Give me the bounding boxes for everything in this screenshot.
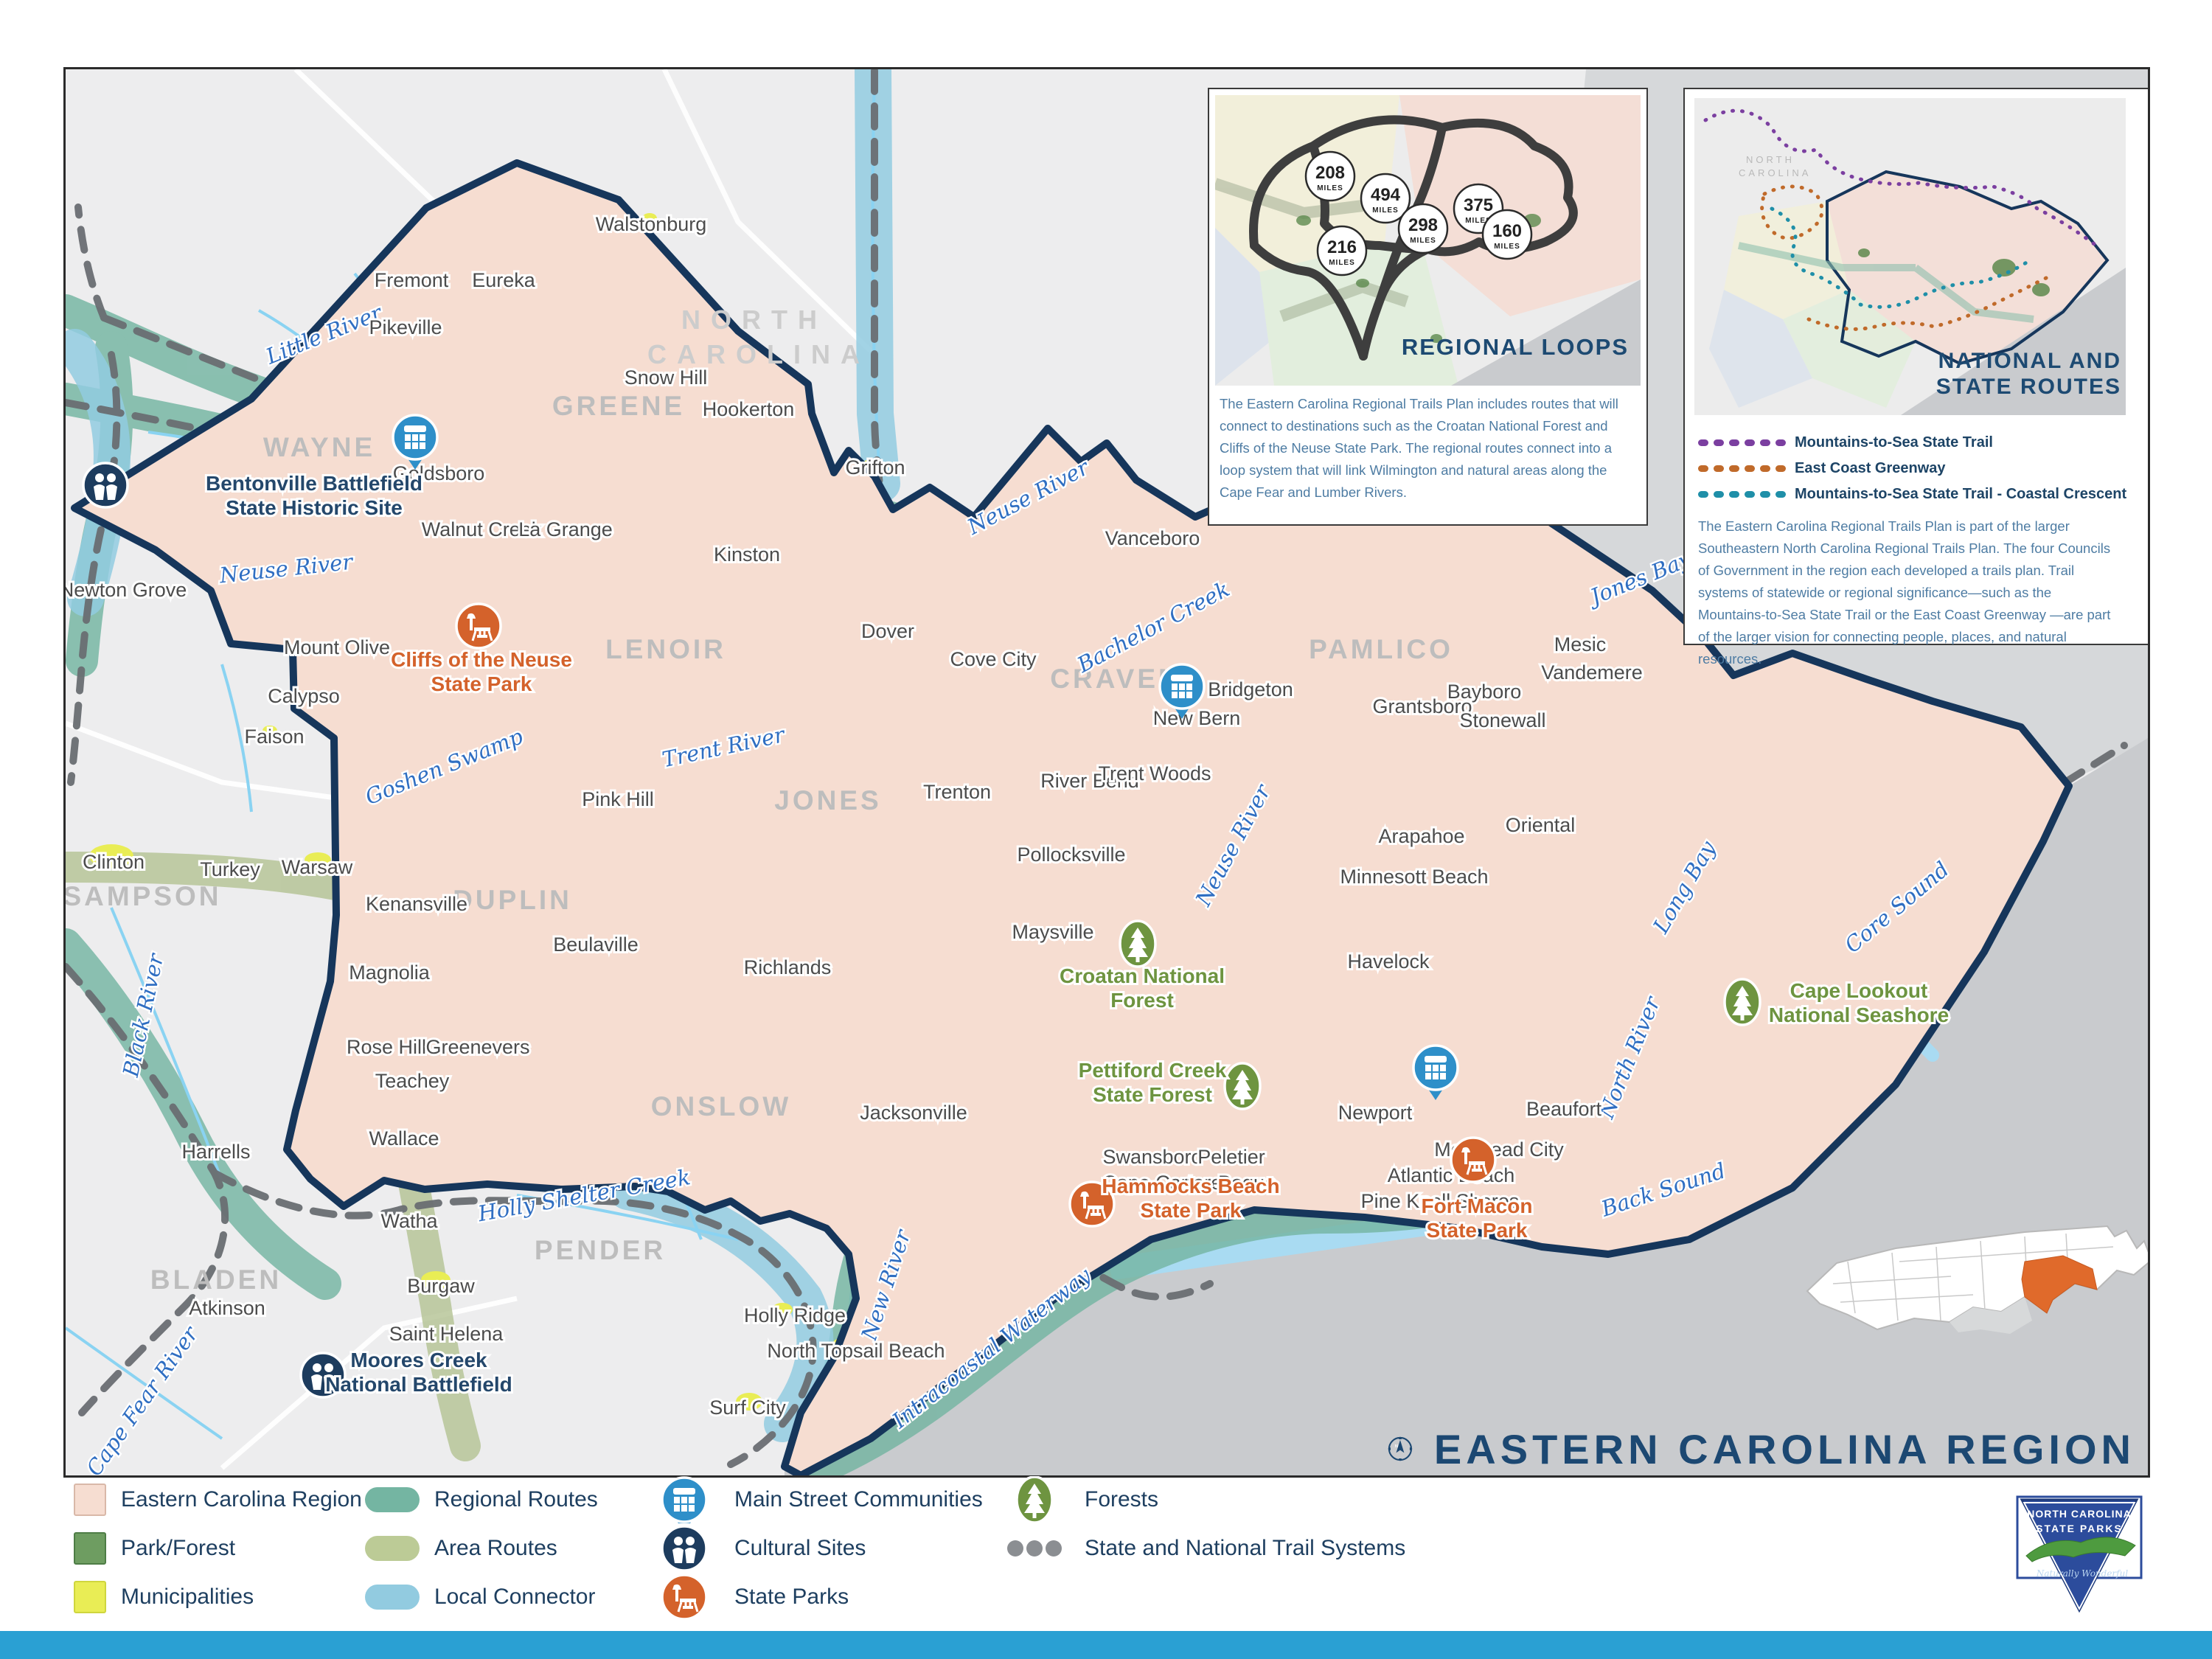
statepark-label: Cliffs of the Neuse [391,648,572,671]
footer-bar [0,1631,2212,1659]
city-label: Pink Hill [582,788,654,810]
legend-row: Park/Forest [74,1534,362,1563]
city-label: Wallace [369,1127,439,1150]
city-label: Calypso [268,685,340,707]
route-legend-row: Mountains-to-Sea State Trail - Coastal C… [1698,481,2135,507]
county-label: JONES [774,785,881,815]
forest-label: National Seashore [1769,1004,1949,1026]
svg-text:STATE PARKS: STATE PARKS [2036,1523,2123,1534]
county-label: ONSLOW [651,1091,791,1121]
svg-text:NORTH: NORTH [1746,154,1795,165]
city-label: Swansboro [1102,1146,1202,1168]
city-label: Kinston [714,543,780,566]
city-label: Bayboro [1447,681,1522,703]
city-label: Pikeville [369,316,442,338]
legend-pill [365,1536,420,1561]
legend-row: State and National Trail Systems [999,1534,1405,1563]
city-label: Dover [861,620,914,642]
city-label: Maysville [1012,921,1093,943]
city-label: Turkey [200,858,260,880]
legend-row: Cultural Sites [649,1534,983,1563]
city-label: Holly Ridge [744,1304,846,1326]
city-label: Minnesott Beach [1340,866,1488,888]
route-legend-row: East Coast Greenway [1698,456,2135,481]
title-block: N EASTERN CAROLINA REGION [1387,1412,2135,1478]
city-label: Teachey [375,1070,450,1092]
city-label: Peletier [1197,1146,1265,1168]
cultural-icon [649,1525,720,1572]
legend-label: Cultural Sites [734,1536,866,1561]
svg-text:298: 298 [1408,215,1438,235]
traildots-icon [999,1525,1070,1572]
mainstreet-icon [649,1476,720,1523]
city-label: Burgaw [407,1275,475,1297]
legend-label: State Parks [734,1585,849,1610]
city-label: Trent Woods [1098,762,1211,785]
cultural-icon[interactable] [83,463,128,507]
forest-label: Cape Lookout [1790,979,1928,1002]
mileage-badge: 216 MILES [1318,226,1366,275]
plan-map-page: WAYNEGREENELENOIRCRAVENPAMLICOJONESSAMPS… [0,0,2212,1659]
route-dotted-line-icon [1698,491,1786,498]
city-label: Mount Olive [284,636,390,658]
county-label: LENOIR [605,634,726,664]
county-label: WAYNE [263,432,375,462]
statepark-icon [649,1573,720,1621]
legend-swatch [74,1484,106,1516]
cultural-label: National Battlefield [325,1373,512,1396]
city-label: Oriental [1506,814,1576,836]
forest-label: Forest [1110,989,1174,1012]
city-label: Snow Hill [625,366,708,389]
inset-loops-description: The Eastern Carolina Regional Trails Pla… [1220,393,1636,504]
city-label: Warsaw [282,856,353,878]
svg-text:494: 494 [1371,185,1401,205]
county-label: PENDER [535,1235,666,1265]
route-legend-label: Mountains-to-Sea State Trail [1795,434,1993,451]
svg-text:Naturally Wonderful: Naturally Wonderful [2036,1568,2129,1579]
legend-label: Municipalities [121,1585,254,1610]
forest-icon[interactable] [1225,1063,1260,1109]
statepark-label: State Park [1141,1199,1242,1222]
forest-label: State Forest [1093,1083,1212,1106]
svg-text:MILES: MILES [1372,206,1399,215]
city-label: Magnolia [349,961,431,984]
nc-state-parks-logo: NORTH CAROLINA STATE PARKS Naturally Won… [2014,1494,2144,1615]
city-label: Grifton [845,456,905,479]
svg-text:MILES: MILES [1494,243,1520,251]
city-label: Beulaville [553,933,639,956]
statepark-icon[interactable] [456,604,501,648]
svg-text:MILES: MILES [1329,259,1355,267]
route-dotted-line-icon [1698,439,1786,446]
cultural-label: Moores Creek [350,1349,487,1371]
city-label: Harrells [181,1141,250,1163]
legend-row: Regional Routes [365,1485,598,1514]
legend-row: Area Routes [365,1534,598,1563]
inset-loops-title: REGIONAL LOOPS [1402,334,1629,361]
inset-routes-title: NATIONAL AND STATE ROUTES [1936,349,2121,400]
statepark-label: State Park [1427,1219,1528,1242]
county-label: GREENE [552,391,685,421]
city-label: Eureka [472,269,536,291]
legend-label: Area Routes [434,1536,557,1561]
legend-row: State Parks [649,1582,983,1612]
city-label: Richlands [744,956,832,978]
route-dotted-line-icon [1698,465,1786,472]
cultural-icon[interactable] [662,1526,706,1571]
city-label: La Grange [518,518,613,540]
legend-row: Main Street Communities [649,1485,983,1514]
city-label: Fremont [375,269,449,291]
forest-icon[interactable] [1725,979,1760,1025]
statepark-icon[interactable] [1451,1138,1495,1182]
route-legend-label: East Coast Greenway [1795,460,1946,477]
county-label: SAMPSON [66,881,222,911]
city-label: Greenevers [425,1036,529,1058]
city-label: Jacksonville [860,1102,967,1124]
city-label: North Topsail Beach [767,1340,945,1362]
city-label: Walstonburg [596,213,707,235]
city-label: Bridgeton [1208,678,1293,700]
legend-pill [365,1585,420,1610]
statepark-label: Hammocks Beach [1102,1175,1279,1197]
county-label: PAMLICO [1309,634,1453,664]
compass-icon: N [1387,1417,1413,1478]
mileage-badge: 298 MILES [1399,204,1447,253]
city-label: Stonewall [1459,709,1545,731]
city-label: Kenansville [366,893,467,915]
svg-text:NORTH CAROLINA: NORTH CAROLINA [2027,1508,2132,1520]
legend-label: Regional Routes [434,1487,598,1512]
svg-text:375: 375 [1464,195,1493,215]
city-label: Saint Helena [389,1323,504,1345]
inset-regional-loops[interactable]: 208 MILES 494 MILES 298 MILES 375 MILES … [1208,88,1648,526]
legend-pill [365,1487,420,1512]
legend-swatch [74,1532,106,1565]
route-legend-label: Mountains-to-Sea State Trail - Coastal C… [1795,486,2126,503]
route-legend-row: Mountains-to-Sea State Trail [1698,430,2135,455]
city-label: Pollocksville [1017,844,1125,866]
city-label: Rose Hill [347,1036,426,1058]
legend-label: Local Connector [434,1585,595,1610]
inset-national-state-routes[interactable]: NORTH CAROLINA NATIONAL AND STATE ROUTES… [1683,88,2149,645]
legend-row: Eastern Carolina Region [74,1485,362,1514]
legend-label: Forests [1085,1487,1158,1512]
main-map[interactable]: WAYNEGREENELENOIRCRAVENPAMLICOJONESSAMPS… [63,67,2150,1478]
city-label: Watha [380,1210,438,1232]
city-label: Newton Grove [66,579,187,601]
svg-text:160: 160 [1492,221,1522,241]
forest-icon[interactable] [1120,921,1155,967]
legend-swatch [74,1581,106,1613]
statepark-label: Fort Macon [1422,1194,1533,1217]
county-label: DUPLIN [453,885,572,915]
mileage-badge: 208 MILES [1306,152,1354,201]
forest-icon [999,1476,1070,1523]
legend-row: Local Connector [365,1582,598,1612]
svg-text:MILES: MILES [1410,237,1436,245]
city-label: Beaufort [1526,1098,1602,1120]
legend-label: State and National Trail Systems [1085,1536,1405,1561]
city-label: Mesic [1554,633,1607,655]
map-legend: Eastern Carolina RegionPark/ForestMunici… [65,1485,1466,1627]
svg-text:N: N [1395,1444,1398,1449]
forest-icon[interactable] [1017,1477,1052,1523]
mainstreet-icon[interactable] [662,1478,706,1523]
forest-label: Croatan National [1060,964,1225,987]
legend-row: Forests [999,1485,1405,1514]
legend-label: Main Street Communities [734,1487,983,1512]
svg-text:CAROLINA: CAROLINA [1739,167,1811,178]
cultural-label: Bentonville Battlefield [206,472,422,495]
svg-text:MILES: MILES [1317,184,1343,192]
legend-label: Eastern Carolina Region [121,1487,362,1512]
mileage-badge: 160 MILES [1483,210,1531,259]
svg-text:208: 208 [1315,163,1345,183]
cultural-label: State Historic Site [226,496,403,519]
svg-text:216: 216 [1327,237,1357,257]
city-label: Newport [1338,1102,1413,1124]
statepark-label: State Park [431,672,532,695]
city-label: Hookerton [703,398,795,420]
city-label: Arapahoe [1378,825,1464,847]
city-label: Vandemere [1541,661,1643,684]
city-label: Atlantic Beach [1388,1164,1515,1186]
city-label: New Bern [1153,707,1241,729]
city-label: Havelock [1347,950,1430,973]
state-label: NORTH [681,305,827,335]
legend-row: Municipalities [74,1582,362,1612]
city-label: Atkinson [189,1297,265,1319]
city-label: Surf City [709,1397,786,1419]
routes-legend: Mountains-to-Sea State TrailEast Coast G… [1698,430,2135,507]
forest-label: Pettiford Creek [1079,1059,1227,1082]
city-label: Faison [244,726,304,748]
state-label: CAROLINA [647,339,870,369]
city-label: Clinton [83,851,145,873]
county-label: BLADEN [150,1265,282,1295]
city-label: Trenton [923,781,991,803]
inset-routes-description: The Eastern Carolina Regional Trails Pla… [1698,515,2117,670]
city-label: Vanceboro [1105,527,1200,549]
page-title: EASTERN CAROLINA REGION [1434,1425,2135,1473]
city-label: Cove City [950,648,1037,670]
statepark-icon[interactable] [662,1575,706,1619]
legend-label: Park/Forest [121,1536,235,1561]
